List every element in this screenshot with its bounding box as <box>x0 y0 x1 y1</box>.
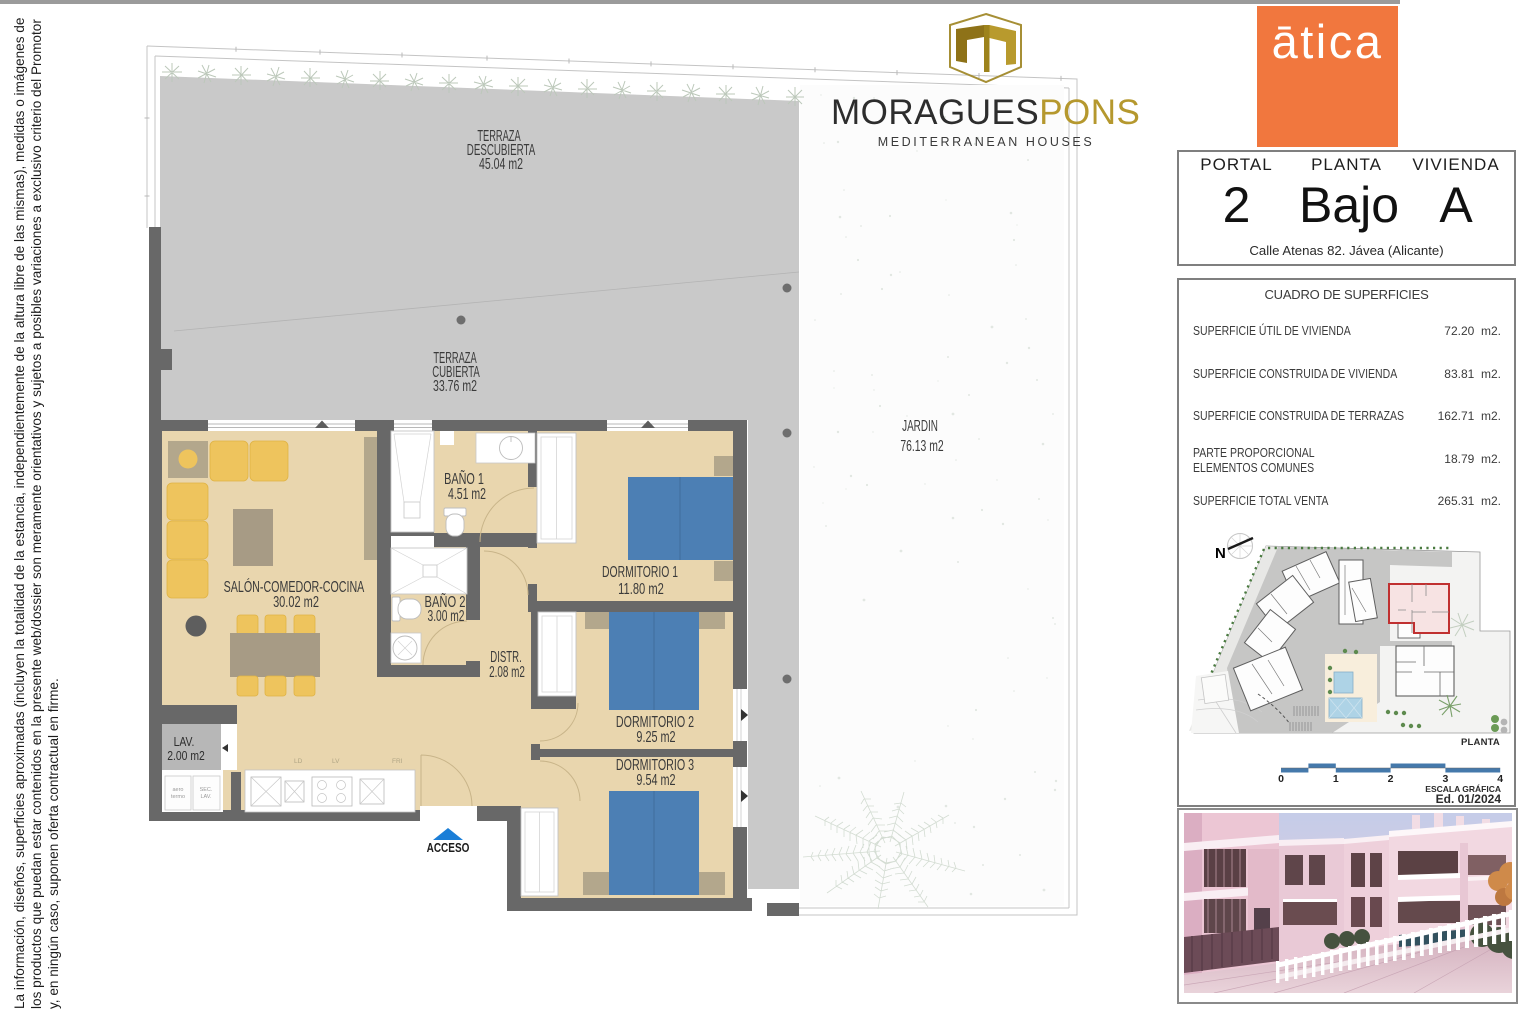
svg-text:termo: termo <box>171 794 185 800</box>
svg-text:30.02 m2: 30.02 m2 <box>273 593 319 610</box>
svg-text:LAV.: LAV. <box>200 794 211 800</box>
svg-text:SEC.: SEC. <box>200 787 213 793</box>
svg-text:76.13 m2: 76.13 m2 <box>900 437 943 455</box>
svg-text:9.54 m2: 9.54 m2 <box>636 771 675 788</box>
svg-text:2: 2 <box>1388 773 1394 784</box>
svg-text:N: N <box>1215 545 1226 562</box>
svg-text:9.25 m2: 9.25 m2 <box>636 728 675 745</box>
svg-text:ACCESO: ACCESO <box>427 841 470 856</box>
svg-text:11.80 m2: 11.80 m2 <box>618 580 664 597</box>
svg-text:2.00 m2: 2.00 m2 <box>167 749 205 763</box>
svg-text:45.04 m2: 45.04 m2 <box>479 155 523 173</box>
svg-text:33.76 m2: 33.76 m2 <box>433 377 477 395</box>
svg-text:LV: LV <box>332 758 340 765</box>
svg-text:1: 1 <box>1333 773 1339 784</box>
svg-text:2.08 m2: 2.08 m2 <box>489 663 525 681</box>
svg-text:LD: LD <box>294 758 303 765</box>
svg-text:4: 4 <box>1497 773 1503 784</box>
svg-text:DORMITORIO 1: DORMITORIO 1 <box>602 563 678 581</box>
svg-text:3.00 m2: 3.00 m2 <box>428 607 465 625</box>
svg-text:0: 0 <box>1278 773 1284 784</box>
svg-text:3: 3 <box>1442 773 1448 784</box>
svg-text:aero: aero <box>172 787 183 793</box>
svg-text:4.51 m2: 4.51 m2 <box>448 485 486 503</box>
svg-text:LAV.: LAV. <box>174 735 195 749</box>
svg-text:JARDIN: JARDIN <box>902 417 938 435</box>
svg-text:FRI: FRI <box>392 758 403 765</box>
